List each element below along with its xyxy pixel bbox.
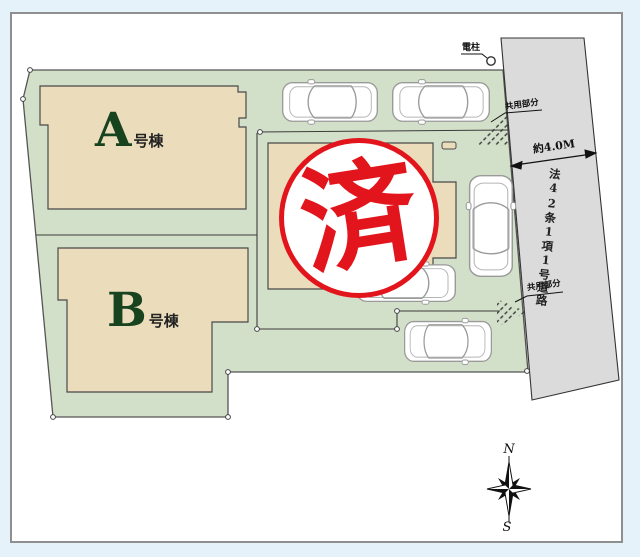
site-plan-drawing: A 号棟 B 号棟 済 電柱 共用部分 共用部分 約4.0M 法42条1項1号道… <box>0 0 640 557</box>
building-c-porch <box>442 142 456 149</box>
utility-pole-leader <box>461 54 487 58</box>
utility-pole-symbol <box>487 57 495 65</box>
utility-pole-label: 電柱 <box>462 44 480 53</box>
building-a-letter: A <box>95 110 131 152</box>
compass-north-label: N <box>499 443 519 456</box>
sold-stamp: 済 <box>279 138 439 298</box>
sold-stamp-text: 済 <box>293 152 426 285</box>
building-a-suffix: 号棟 <box>133 134 163 149</box>
car-bottom <box>405 318 492 364</box>
building-b-suffix: 号棟 <box>149 314 179 329</box>
car-top-right <box>393 80 490 125</box>
car-top-left <box>283 80 378 125</box>
building-b-label: B 号棟 <box>107 290 179 332</box>
building-b-letter: B <box>107 290 147 332</box>
building-a-label: A 号棟 <box>95 110 163 152</box>
compass-rose <box>487 456 531 522</box>
car-east-vertical <box>466 176 515 277</box>
compass-south-label: S <box>497 521 517 534</box>
